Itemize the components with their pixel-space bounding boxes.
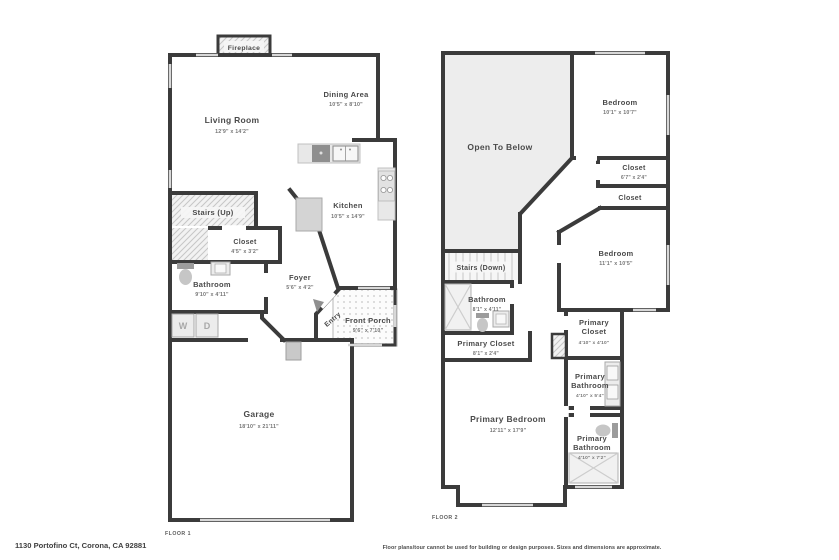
kitchen-counter bbox=[298, 144, 360, 163]
fireplace-label: Fireplace bbox=[228, 45, 261, 52]
primary-closet2-dims: 4'10" x 4'10" bbox=[579, 340, 610, 346]
bedroom2-label: Bedroom bbox=[598, 249, 633, 258]
bathroom2-label: Bathroom bbox=[468, 295, 506, 304]
dryer-label: D bbox=[204, 321, 211, 331]
water-heater-icon bbox=[286, 342, 301, 360]
washer-label: W bbox=[179, 321, 188, 331]
bathroom-label: Bathroom bbox=[193, 280, 231, 289]
fridge-icon bbox=[296, 198, 322, 231]
wall-chase-hatch bbox=[552, 334, 566, 358]
dining-area-dims: 10'5" x 8'10" bbox=[329, 102, 363, 108]
primary-bathroom2-label-line1: Primary bbox=[577, 434, 608, 443]
floor2-plan: Open To Below Bedroom 10'1" x 10'7" Clos… bbox=[432, 53, 668, 521]
primary-bathroom1-dims: 4'10" x 5'4" bbox=[576, 393, 604, 399]
primary-bathroom2-dims: 4'10" x 7'2" bbox=[578, 455, 606, 461]
dryer-icon: D bbox=[196, 314, 218, 337]
primary-bathroom1-label-line1: Primary bbox=[575, 372, 606, 381]
stairs-up-hatch-lower bbox=[172, 228, 208, 260]
closet2-label: Closet bbox=[618, 195, 642, 202]
front-porch-dims: 9'6" x 7'10" bbox=[353, 328, 384, 334]
stove-icon bbox=[378, 168, 395, 220]
closet1-label: Closet bbox=[622, 165, 646, 172]
bedroom2-dims: 11'1" x 10'5" bbox=[599, 261, 633, 267]
footer: 1130 Portofino Ct, Corona, CA 92881 Floo… bbox=[15, 541, 662, 551]
sink-icon bbox=[333, 146, 358, 161]
stairs-down-label: Stairs (Down) bbox=[456, 265, 505, 272]
primary-bathroom1-label-line2: Bathroom bbox=[571, 381, 609, 390]
stairs-up-label: Stairs (Up) bbox=[192, 208, 233, 217]
garage-dims: 18'10" x 21'11" bbox=[239, 424, 279, 430]
washer-icon: W bbox=[172, 314, 194, 337]
open-to-below-label: Open To Below bbox=[467, 142, 532, 152]
primary-bedroom-dims: 12'11" x 17'9" bbox=[490, 428, 527, 434]
primary-bedroom-label: Primary Bedroom bbox=[470, 414, 546, 424]
living-room-dims: 12'9" x 14'2" bbox=[215, 129, 249, 135]
living-room-label: Living Room bbox=[205, 115, 260, 125]
kitchen-dims: 10'5" x 14'9" bbox=[331, 214, 365, 220]
garage-label: Garage bbox=[243, 409, 274, 419]
closet1-dims: 6'7" x 2'4" bbox=[621, 175, 647, 181]
kitchen-label: Kitchen bbox=[333, 201, 363, 210]
bedroom1-label: Bedroom bbox=[602, 98, 637, 107]
dining-area-label: Dining Area bbox=[323, 90, 369, 99]
floor-plan-canvas: W D Fireplace Living Room 12'9" x 14'2" … bbox=[0, 0, 839, 560]
primary-bathroom2-label-line2: Bathroom bbox=[573, 443, 611, 452]
primary-closet2-label-line2: Closet bbox=[582, 327, 607, 336]
foyer-label: Foyer bbox=[289, 273, 311, 282]
floor1-plan: W D Fireplace Living Room 12'9" x 14'2" … bbox=[165, 36, 397, 537]
closet-dims: 4'5" x 3'2" bbox=[231, 249, 259, 255]
closet-label: Closet bbox=[233, 239, 257, 246]
floor-plan-page: W D Fireplace Living Room 12'9" x 14'2" … bbox=[0, 0, 839, 560]
primary-closet2-label-line1: Primary bbox=[579, 318, 610, 327]
bathroom2-dims: 8'1" x 4'11" bbox=[473, 307, 502, 313]
floor1-caption: FLOOR 1 bbox=[165, 531, 191, 537]
front-porch-label: Front Porch bbox=[345, 316, 391, 325]
bathtub-icon bbox=[445, 284, 471, 330]
foyer-dims: 5'6" x 4'2" bbox=[286, 285, 314, 291]
floor2-caption: FLOOR 2 bbox=[432, 515, 458, 521]
bathroom-dims: 9'10" x 4'11" bbox=[195, 292, 229, 298]
property-address: 1130 Portofino Ct, Corona, CA 92881 bbox=[15, 541, 147, 550]
bedroom1-dims: 10'1" x 10'7" bbox=[603, 110, 637, 116]
primary-closet1-dims: 8'1" x 2'4" bbox=[473, 351, 499, 357]
primary-closet1-label: Primary Closet bbox=[457, 339, 514, 348]
bathroom-sink-icon bbox=[211, 262, 230, 275]
bathroom2-sink-icon bbox=[493, 311, 509, 327]
disclaimer-text: Floor plans/tour cannot be used for buil… bbox=[383, 545, 662, 551]
